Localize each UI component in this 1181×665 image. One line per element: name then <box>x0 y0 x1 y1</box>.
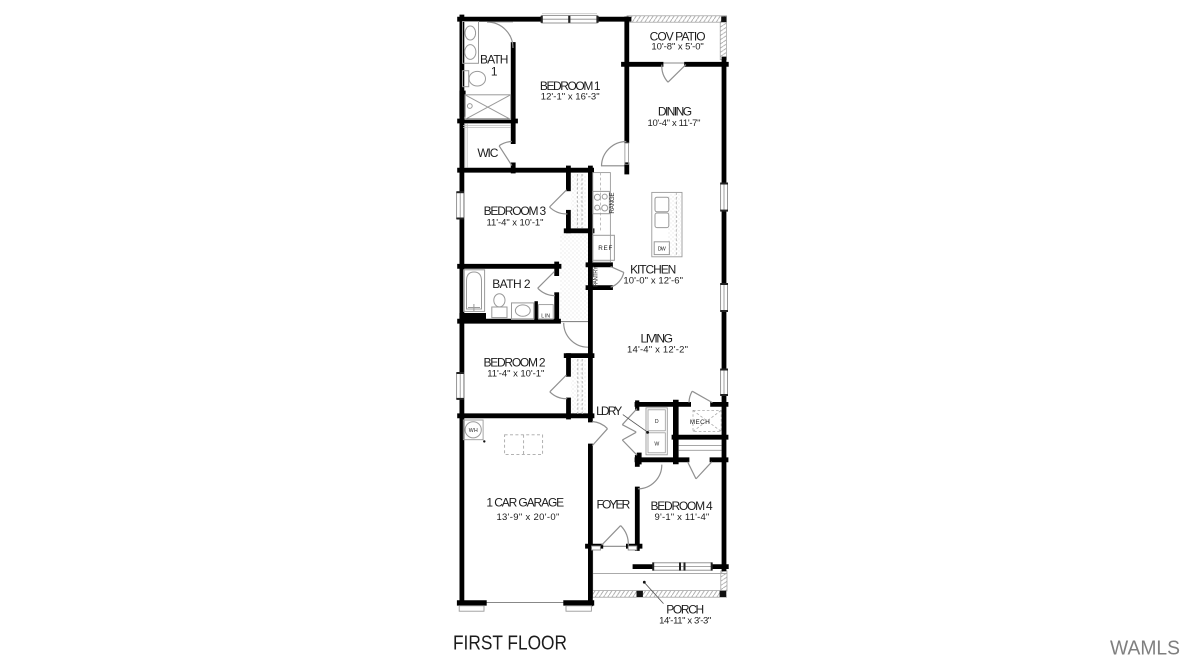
svg-text:DW: DW <box>658 247 666 253</box>
svg-text:BEDROOM 3: BEDROOM 3 <box>484 204 547 218</box>
svg-text:RANGE: RANGE <box>609 192 616 213</box>
svg-text:LDRY: LDRY <box>596 404 622 418</box>
svg-text:WIC: WIC <box>477 146 498 160</box>
svg-text:11'-4" x 10'-1": 11'-4" x 10'-1" <box>487 369 544 380</box>
svg-text:10'-0" x 12'-6": 10'-0" x 12'-6" <box>623 276 683 287</box>
svg-text:KITCHEN: KITCHEN <box>630 263 676 277</box>
svg-text:LIVING: LIVING <box>640 332 673 346</box>
svg-text:BATH 2: BATH 2 <box>492 277 531 291</box>
svg-text:1: 1 <box>491 65 498 79</box>
svg-text:FOYER: FOYER <box>597 498 631 512</box>
svg-text:PANTRY: PANTRY <box>593 266 599 287</box>
svg-text:BEDROOM 2: BEDROOM 2 <box>484 355 546 369</box>
svg-text:PORCH: PORCH <box>666 603 704 617</box>
svg-text:14'-4" x 12'-2": 14'-4" x 12'-2" <box>627 345 688 356</box>
svg-text:WH: WH <box>469 428 478 434</box>
svg-text:MECH: MECH <box>690 419 710 426</box>
svg-text:W: W <box>654 442 659 448</box>
svg-text:REF: REF <box>598 245 612 252</box>
svg-text:12'-1" x 16'-3": 12'-1" x 16'-3" <box>541 91 600 102</box>
svg-text:D: D <box>655 419 659 425</box>
svg-text:WAMLS: WAMLS <box>1110 638 1180 660</box>
svg-text:14'-11" x 3'-3": 14'-11" x 3'-3" <box>659 616 711 627</box>
svg-text:FIRST FLOOR: FIRST FLOOR <box>453 633 567 655</box>
svg-text:13'-9" x 20'-0": 13'-9" x 20'-0" <box>496 512 559 523</box>
svg-text:1 CAR GARAGE: 1 CAR GARAGE <box>486 496 564 510</box>
svg-text:11'-4" x 10'-1": 11'-4" x 10'-1" <box>486 218 543 229</box>
svg-text:10'-4" x 11'-7": 10'-4" x 11'-7" <box>648 118 701 129</box>
svg-text:9'-1" x 11'-4": 9'-1" x 11'-4" <box>655 512 710 523</box>
svg-text:LIN: LIN <box>541 314 550 320</box>
svg-text:10'-8" x 5'-0": 10'-8" x 5'-0" <box>651 42 703 53</box>
svg-text:DINING: DINING <box>658 105 692 119</box>
